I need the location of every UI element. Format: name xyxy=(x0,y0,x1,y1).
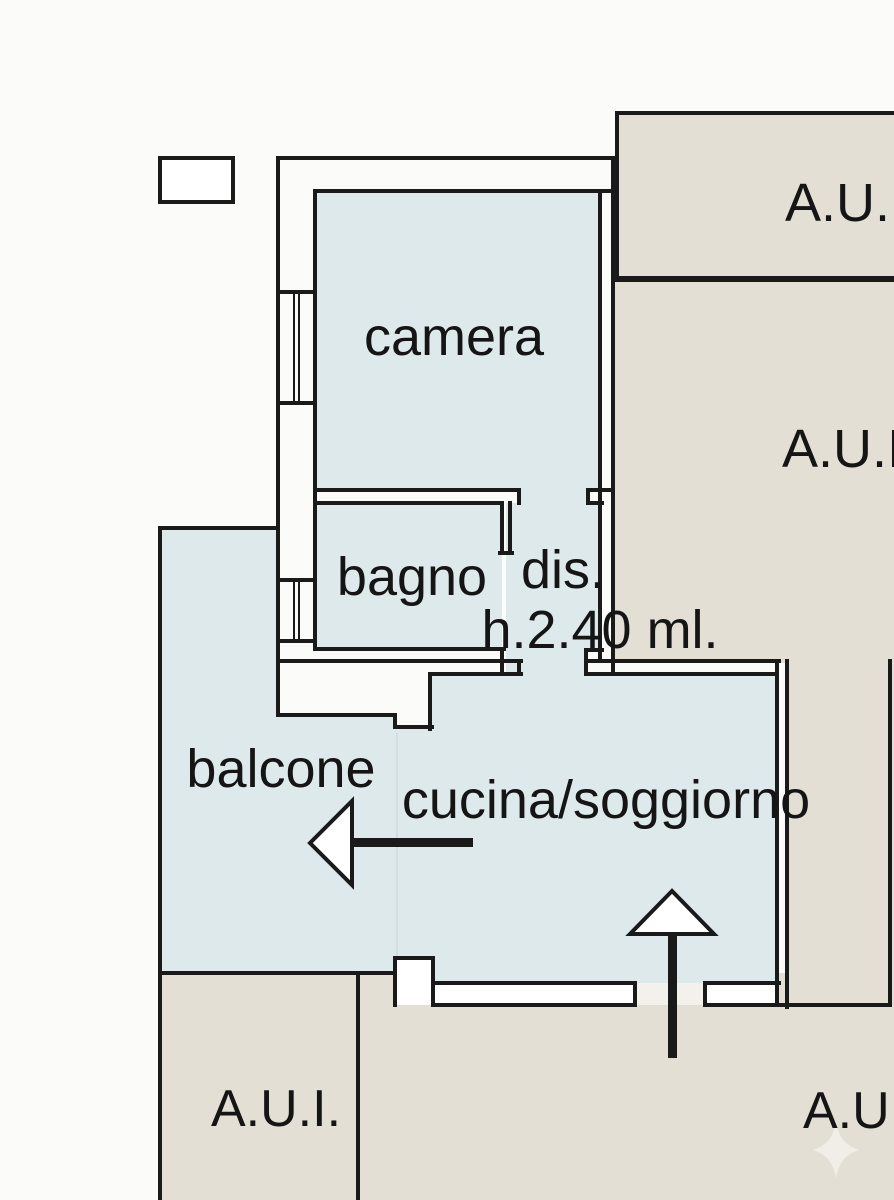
balcone-step-fill xyxy=(395,958,433,1005)
dis-cucina-door-opening xyxy=(521,659,584,676)
detail-box xyxy=(160,158,233,202)
room-label-balcone: balcone xyxy=(186,742,375,796)
camera-dis-door-opening xyxy=(521,486,586,505)
room-label-cucina-soggiorno: cucina/soggiorno xyxy=(402,773,810,827)
bottom-wall-right-fill xyxy=(705,983,779,1003)
unit-label-bottom-left: A.U.I. xyxy=(211,1083,341,1135)
room-label-bagno: bagno xyxy=(337,550,487,604)
unit-label-bottom-right: A.U xyxy=(803,1085,890,1137)
floor-plan: camera bagno dis. h.2.40 ml. balcone cuc… xyxy=(0,0,894,1200)
unit-label-top-right: A.U. xyxy=(785,176,890,230)
unit-label-right: A.U.I xyxy=(782,422,894,476)
room-label-camera: camera xyxy=(364,310,544,364)
room-label-dis: dis. xyxy=(521,543,605,597)
ceiling-height-note: h.2.40 ml. xyxy=(481,603,718,657)
bottom-wall-left-fill xyxy=(433,983,633,1003)
